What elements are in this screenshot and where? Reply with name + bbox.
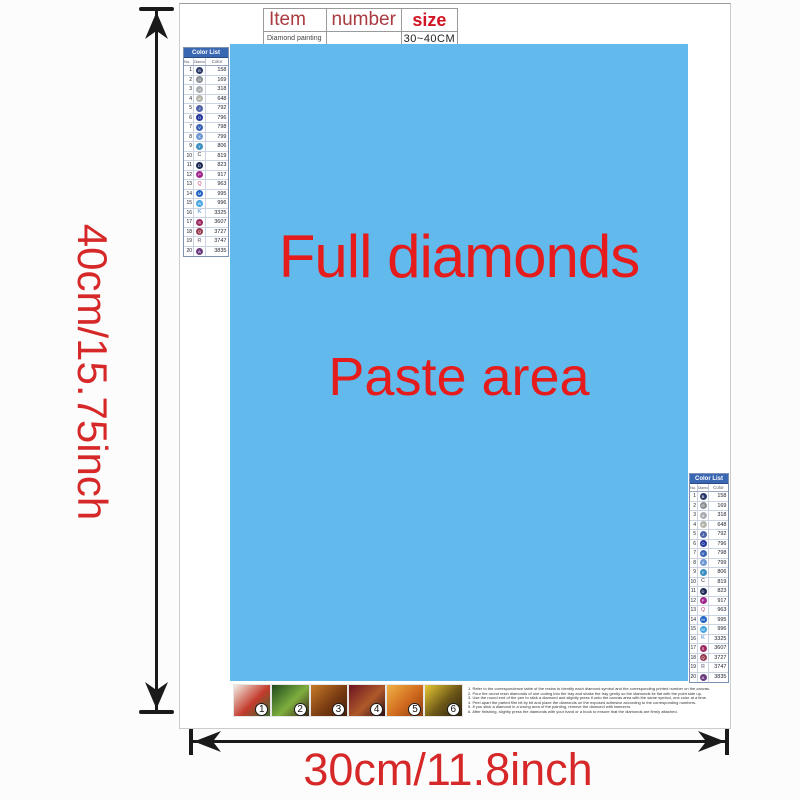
dmc-color-code: 796 (709, 541, 728, 547)
color-row-number: 18 (690, 654, 698, 663)
diamond-color-dot-icon: e (700, 521, 707, 528)
column-header-diamond: Diamond (698, 484, 709, 491)
dmc-color-code: 169 (206, 77, 228, 83)
horizontal-dimension-cap-right (725, 729, 729, 755)
dmc-color-code: 792 (709, 531, 728, 537)
color-list-row: 10C819 (184, 152, 228, 162)
column-header-no: No. (184, 58, 194, 65)
diamond-symbol-cell: K (194, 209, 206, 218)
color-list-row: 14M995 (184, 190, 228, 200)
diamond-color-dot-icon: X (196, 133, 203, 140)
paste-area: Full diamonds Paste area (230, 44, 688, 681)
step-thumbnail-image: 2 (271, 684, 309, 717)
color-list-row: 4e648 (690, 521, 728, 531)
diamond-symbol-cell: J (194, 104, 206, 113)
diamond-color-dot-icon: X (700, 559, 707, 566)
step-number-badge: 5 (408, 703, 421, 716)
dmc-color-code: 3325 (709, 636, 728, 642)
color-row-number: 5 (690, 530, 698, 539)
instruction-line: 6. After finishing, slightly press the d… (468, 710, 712, 715)
paste-area-subtitle: Paste area (230, 346, 688, 408)
vertical-dimension-cap-bottom (139, 710, 174, 714)
diamond-color-dot-icon: A (196, 248, 203, 255)
diamond-color-dot-icon: P (700, 597, 707, 604)
step-thumbnail-image: 1 (233, 684, 271, 717)
color-row-number: 2 (690, 502, 698, 511)
color-row-number: 10 (690, 578, 698, 587)
vertical-dimension-line (155, 10, 158, 711)
diamond-letter-symbol: Q (701, 607, 705, 614)
diamond-color-dot-icon: d (196, 86, 203, 93)
dmc-color-code: 158 (206, 67, 228, 73)
color-list-row: 9Y806 (690, 568, 728, 578)
diamond-color-dot-icon: W (196, 200, 203, 207)
diamond-letter-symbol: C (701, 578, 705, 585)
diamond-letter-symbol: Q (197, 181, 201, 188)
diamond-color-dot-icon: D (700, 588, 707, 595)
instruction-step-images: 123456 (233, 684, 463, 717)
color-row-number: 19 (690, 663, 698, 672)
diamond-symbol-cell: C (194, 152, 206, 161)
color-list-row: 20A3835 (690, 673, 728, 683)
diamond-color-dot-icon: W (700, 626, 707, 633)
step-thumbnail-image: 4 (348, 684, 386, 717)
color-list-row: 6O796 (184, 114, 228, 124)
diamond-symbol-cell: X (698, 559, 709, 568)
color-row-number: 2 (184, 76, 194, 85)
color-row-number: 1 (690, 492, 698, 501)
diamond-symbol-cell: O (698, 540, 709, 549)
step-number-badge: 1 (255, 703, 268, 716)
diamond-color-dot-icon: d (700, 512, 707, 519)
step-number-badge: 2 (294, 703, 307, 716)
size-header: size (401, 9, 457, 32)
dmc-color-code: 806 (206, 143, 228, 149)
dmc-color-code: 823 (709, 588, 728, 594)
color-row-number: 1 (184, 66, 194, 75)
color-list-right: Color ListNo.DiamondColor1B1582G1693d318… (689, 473, 729, 683)
dmc-color-code: 995 (709, 617, 728, 623)
diamond-symbol-cell: Y (194, 142, 206, 151)
dmc-color-code: 963 (709, 607, 728, 613)
diamond-symbol-cell: S (194, 218, 206, 227)
dmc-color-code: 823 (206, 162, 228, 168)
column-header-diamond: Diamond (194, 58, 206, 65)
diamond-color-dot-icon: P (196, 171, 203, 178)
step-thumbnail-image: 3 (310, 684, 348, 717)
color-row-number: 12 (690, 597, 698, 606)
dmc-color-code: 3325 (206, 210, 228, 216)
diamond-letter-symbol: C (198, 152, 202, 159)
dmc-color-code: 3607 (206, 219, 228, 225)
diamond-symbol-cell: d (698, 511, 709, 520)
instruction-text-block: 1. Refer to the correspondence table of … (468, 687, 712, 715)
color-list-title: Color List (690, 474, 728, 484)
diamond-color-dot-icon: J (700, 531, 707, 538)
diamond-color-dot-icon: G (196, 76, 203, 83)
color-list-row: 8X799 (184, 133, 228, 143)
diamond-symbol-cell: A (698, 673, 709, 683)
diamond-color-dot-icon: V (700, 550, 707, 557)
color-row-number: 17 (184, 218, 194, 227)
item-header: Item (264, 9, 327, 32)
height-dimension-label: 40cm/15.75inch (68, 224, 116, 521)
diamond-symbol-cell: Y (698, 568, 709, 577)
diamond-symbol-cell: G (194, 76, 206, 85)
color-row-number: 3 (184, 85, 194, 94)
diamond-symbol-cell: e (698, 521, 709, 530)
color-row-number: 13 (184, 180, 194, 189)
color-row-number: 13 (690, 606, 698, 615)
item-number-size-table: Item number size Diamond painting 30~40C… (263, 8, 458, 46)
color-row-number: 11 (690, 587, 698, 596)
diamond-color-dot-icon: e (196, 95, 203, 102)
dmc-color-code: 648 (709, 522, 728, 528)
diamond-color-dot-icon: S (700, 645, 707, 652)
diamond-symbol-cell: Q (698, 606, 709, 615)
color-list-row: 7V798 (690, 549, 728, 559)
diamond-color-dot-icon: V (196, 124, 203, 131)
color-list-row: 3d318 (184, 85, 228, 95)
diamond-letter-symbol: K (198, 209, 202, 216)
dmc-color-code: 819 (709, 579, 728, 585)
dmc-color-code: 917 (709, 598, 728, 604)
color-list-row: 5J792 (184, 104, 228, 114)
color-row-number: 18 (184, 228, 194, 237)
color-list-left: Color ListNo.DiamondColor1B1582G1693d318… (183, 47, 229, 257)
color-list-row: 2G169 (184, 76, 228, 86)
diamond-color-dot-icon: B (196, 67, 203, 74)
color-list-row: 12P917 (690, 597, 728, 607)
number-header: number (326, 9, 401, 32)
diamond-color-dot-icon: M (700, 616, 707, 623)
dmc-color-code: 917 (206, 172, 228, 178)
diamond-color-dot-icon: Q (196, 228, 203, 235)
color-row-number: 12 (184, 171, 194, 180)
horizontal-dimension-line (193, 740, 726, 743)
vertical-dimension-cap-top (139, 7, 174, 11)
color-list-row: 19R3747 (690, 663, 728, 673)
diamond-color-dot-icon: O (196, 114, 203, 121)
diamond-color-dot-icon: Y (196, 143, 203, 150)
step-thumbnail-image: 5 (386, 684, 424, 717)
color-list-row: 1B158 (690, 492, 728, 502)
diamond-symbol-cell: G (698, 502, 709, 511)
dmc-color-code: 996 (206, 200, 228, 206)
color-list-row: 13Q963 (184, 180, 228, 190)
color-row-number: 7 (690, 549, 698, 558)
color-row-number: 6 (690, 540, 698, 549)
dmc-color-code: 3747 (709, 664, 728, 670)
color-row-number: 19 (184, 237, 194, 246)
color-list-row: 15W996 (184, 199, 228, 209)
color-row-number: 14 (184, 190, 194, 199)
color-list-row: 13Q963 (690, 606, 728, 616)
color-row-number: 16 (184, 209, 194, 218)
diamond-symbol-cell: B (194, 66, 206, 75)
diamond-color-dot-icon: O (700, 540, 707, 547)
diamond-symbol-cell: D (698, 587, 709, 596)
diamond-symbol-cell: J (698, 530, 709, 539)
diamond-symbol-cell: P (194, 171, 206, 180)
color-list-row: 9Y806 (184, 142, 228, 152)
dmc-color-code: 318 (709, 512, 728, 518)
column-header-color: Color (206, 58, 228, 65)
dmc-color-code: 648 (206, 96, 228, 102)
diamond-letter-symbol: R (198, 238, 202, 245)
dmc-color-code: 799 (206, 134, 228, 140)
diamond-color-dot-icon: G (700, 502, 707, 509)
color-list-row: 11D823 (690, 587, 728, 597)
diamond-symbol-cell: O (194, 114, 206, 123)
color-row-number: 11 (184, 161, 194, 170)
diamond-symbol-cell: R (698, 663, 709, 672)
color-list-column-headers: No.DiamondColor (690, 484, 728, 492)
color-row-number: 20 (690, 673, 698, 683)
color-list-row: 16K3325 (184, 209, 228, 219)
color-row-number: 16 (690, 635, 698, 644)
step-number-badge: 6 (447, 703, 460, 716)
dmc-color-code: 3607 (709, 645, 728, 651)
color-list-row: 6O796 (690, 540, 728, 550)
color-list-row: 18Q3727 (184, 228, 228, 238)
color-row-number: 14 (690, 616, 698, 625)
dmc-color-code: 798 (709, 550, 728, 556)
color-list-row: 1B158 (184, 66, 228, 76)
color-row-number: 9 (690, 568, 698, 577)
color-list-row: 12P917 (184, 171, 228, 181)
column-header-color: Color (709, 484, 728, 491)
color-list-row: 7V798 (184, 123, 228, 133)
dmc-color-code: 3727 (206, 229, 228, 235)
diamond-letter-symbol: K (701, 635, 705, 642)
diamond-letter-symbol: R (701, 664, 705, 671)
diamond-symbol-cell: A (194, 247, 206, 257)
color-row-number: 15 (184, 199, 194, 208)
color-list-row: 14M995 (690, 616, 728, 626)
color-row-number: 4 (690, 521, 698, 530)
item-table-header-row: Item number size (264, 9, 458, 32)
diamond-color-dot-icon: D (196, 162, 203, 169)
color-row-number: 7 (184, 123, 194, 132)
diamond-symbol-cell: K (698, 635, 709, 644)
diamond-color-dot-icon: A (700, 674, 707, 681)
color-list-row: 2G169 (690, 502, 728, 512)
dmc-color-code: 3747 (206, 238, 228, 244)
dmc-color-code: 3835 (206, 248, 228, 254)
dmc-color-code: 819 (206, 153, 228, 159)
color-row-number: 15 (690, 625, 698, 634)
color-list-row: 19R3747 (184, 237, 228, 247)
color-list-row: 16K3325 (690, 635, 728, 645)
diamond-symbol-cell: B (698, 492, 709, 501)
diamond-symbol-cell: V (698, 549, 709, 558)
color-list-title: Color List (184, 48, 228, 58)
color-row-number: 20 (184, 247, 194, 257)
color-list-row: 4e648 (184, 95, 228, 105)
diamond-symbol-cell: W (194, 199, 206, 208)
diamond-symbol-cell: d (194, 85, 206, 94)
color-list-row: 10C819 (690, 578, 728, 588)
dmc-color-code: 996 (709, 626, 728, 632)
paste-area-title: Full diamonds (230, 222, 688, 291)
diamond-color-dot-icon: S (196, 219, 203, 226)
diamond-color-dot-icon: B (700, 493, 707, 500)
diamond-symbol-cell: e (194, 95, 206, 104)
color-row-number: 6 (184, 114, 194, 123)
dmc-color-code: 169 (709, 503, 728, 509)
color-row-number: 10 (184, 152, 194, 161)
step-number-badge: 3 (332, 703, 345, 716)
dmc-color-code: 806 (709, 569, 728, 575)
dmc-color-code: 799 (709, 560, 728, 566)
width-dimension-label: 30cm/11.8inch (303, 744, 592, 796)
color-row-number: 9 (184, 142, 194, 151)
diamond-symbol-cell: Q (698, 654, 709, 663)
color-list-column-headers: No.DiamondColor (184, 58, 228, 66)
color-row-number: 8 (690, 559, 698, 568)
diamond-symbol-cell: D (194, 161, 206, 170)
diamond-symbol-cell: M (698, 616, 709, 625)
dmc-color-code: 796 (206, 115, 228, 121)
color-list-row: 20A3835 (184, 247, 228, 257)
diamond-symbol-cell: Q (194, 180, 206, 189)
diamond-symbol-cell: Q (194, 228, 206, 237)
diamond-symbol-cell: V (194, 123, 206, 132)
color-list-row: 17S3607 (690, 644, 728, 654)
dmc-color-code: 3727 (709, 655, 728, 661)
color-list-row: 11D823 (184, 161, 228, 171)
color-list-row: 15W996 (690, 625, 728, 635)
diamond-color-dot-icon: Y (700, 569, 707, 576)
dmc-color-code: 798 (206, 124, 228, 130)
diamond-symbol-cell: X (194, 133, 206, 142)
color-row-number: 8 (184, 133, 194, 142)
color-list-row: 8X799 (690, 559, 728, 569)
color-row-number: 17 (690, 644, 698, 653)
diamond-symbol-cell: M (194, 190, 206, 199)
dmc-color-code: 158 (709, 493, 728, 499)
color-row-number: 5 (184, 104, 194, 113)
color-row-number: 4 (184, 95, 194, 104)
color-list-row: 5J792 (690, 530, 728, 540)
color-list-row: 18Q3727 (690, 654, 728, 664)
diamond-symbol-cell: R (194, 237, 206, 246)
color-list-row: 17S3607 (184, 218, 228, 228)
step-number-badge: 4 (370, 703, 383, 716)
dmc-color-code: 318 (206, 86, 228, 92)
column-header-no: No. (690, 484, 698, 491)
color-row-number: 3 (690, 511, 698, 520)
diamond-color-dot-icon: J (196, 105, 203, 112)
diamond-color-dot-icon: M (196, 190, 203, 197)
dmc-color-code: 995 (206, 191, 228, 197)
diamond-symbol-cell: P (698, 597, 709, 606)
dmc-color-code: 963 (206, 181, 228, 187)
diamond-color-dot-icon: Q (700, 654, 707, 661)
diamond-symbol-cell: S (698, 644, 709, 653)
horizontal-dimension-cap-left (189, 729, 193, 755)
diamond-symbol-cell: W (698, 625, 709, 634)
diamond-symbol-cell: C (698, 578, 709, 587)
step-thumbnail-image: 6 (424, 684, 462, 717)
dmc-color-code: 792 (206, 105, 228, 111)
dmc-color-code: 3835 (709, 674, 728, 680)
color-list-row: 3d318 (690, 511, 728, 521)
